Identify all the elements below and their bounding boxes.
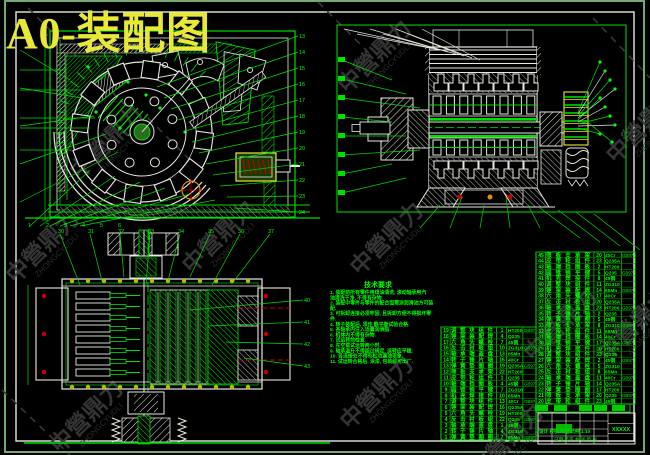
svg-text:13: 13 xyxy=(299,34,305,40)
svg-text:GB97: GB97 xyxy=(622,270,634,275)
svg-text:4. 转子装配后, 须作 静平衡试验合格.: 4. 转子装配后, 须作 静平衡试验合格. xyxy=(330,321,410,328)
svg-text:2. 装配中零件与零件的配合面需涂润滑油方可装: 2. 装配中零件与零件的配合面需涂润滑油方可装 xyxy=(330,300,433,307)
svg-text:19: 19 xyxy=(299,130,305,136)
svg-text:GB97: GB97 xyxy=(524,435,536,440)
svg-text:GB97: GB97 xyxy=(622,323,634,328)
svg-text:配.: 配. xyxy=(330,305,337,312)
svg-text:1: 1 xyxy=(445,435,448,441)
svg-text:32: 32 xyxy=(118,229,124,235)
svg-text:技术要求: 技术要求 xyxy=(364,280,393,289)
svg-text:1: 1 xyxy=(28,223,31,229)
svg-text:GB97: GB97 xyxy=(622,341,634,346)
svg-text:10. 各连接处不得有松动漏油现象.: 10. 各连接处不得有松动漏油现象. xyxy=(330,353,404,360)
svg-text:7. 试运转前检查.: 7. 试运转前检查. xyxy=(330,337,367,344)
svg-text:17: 17 xyxy=(299,98,305,104)
svg-text:20: 20 xyxy=(299,146,305,152)
svg-text:油清洗干净, 不得有杂物.: 油清洗干净, 不得有杂物. xyxy=(330,294,384,301)
svg-text:件.: 件. xyxy=(330,316,337,323)
svg-text:7: 7 xyxy=(501,435,504,441)
svg-text:3: 3 xyxy=(64,223,67,229)
svg-text:65Mn: 65Mn xyxy=(508,435,520,441)
svg-text:24: 24 xyxy=(299,210,305,216)
svg-text:35: 35 xyxy=(208,229,214,235)
svg-text:40: 40 xyxy=(304,298,310,304)
svg-text:XXXXX: XXXXX xyxy=(612,427,631,433)
svg-text:GB97: GB97 xyxy=(524,417,536,422)
svg-text:GB97: GB97 xyxy=(622,376,634,381)
svg-text:30: 30 xyxy=(58,229,64,235)
svg-text:16: 16 xyxy=(299,82,305,88)
svg-text:23: 23 xyxy=(299,194,305,200)
svg-text:GB97: GB97 xyxy=(524,328,536,333)
svg-text:31: 31 xyxy=(88,229,94,235)
svg-text:GB97: GB97 xyxy=(622,393,634,398)
svg-text:GB97: GB97 xyxy=(524,364,536,369)
svg-text:GB97: GB97 xyxy=(524,399,536,404)
svg-text:GB97: GB97 xyxy=(622,358,634,363)
svg-text:5: 5 xyxy=(100,223,103,229)
svg-text:日期 签字 共 张 第 张: 日期 签字 共 张 第 张 xyxy=(554,436,598,443)
svg-text:GB97: GB97 xyxy=(622,305,634,310)
svg-text:3. 可拆卸连接必须牢固, 且拆卸方便不得损坏零: 3. 可拆卸连接必须牢固, 且拆卸方便不得损坏零 xyxy=(330,310,431,317)
svg-text:2: 2 xyxy=(46,223,49,229)
svg-text:43: 43 xyxy=(304,364,310,370)
svg-text:GB97: GB97 xyxy=(524,346,536,351)
svg-text:41: 41 xyxy=(304,320,310,326)
svg-text:GB97: GB97 xyxy=(524,381,536,386)
svg-text:42: 42 xyxy=(304,342,310,348)
svg-text:18: 18 xyxy=(299,114,305,120)
svg-text:33: 33 xyxy=(148,229,154,235)
svg-text:36: 36 xyxy=(238,229,244,235)
svg-text:37: 37 xyxy=(268,229,274,235)
svg-text:14: 14 xyxy=(299,50,305,56)
svg-text:GB97: GB97 xyxy=(622,288,634,293)
svg-text:5. 各轴承内注入适量润滑脂.: 5. 各轴承内注入适量润滑脂. xyxy=(330,326,391,333)
svg-text:11. 试运转合格后, 涂漆, 包装即可出厂.: 11. 试运转合格后, 涂漆, 包装即可出厂. xyxy=(330,358,414,365)
svg-text:1. 装配前所有零件用煤油清洗, 滚动轴承用汽: 1. 装配前所有零件用煤油清洗, 滚动轴承用汽 xyxy=(330,289,426,296)
svg-text:6. 机体内不得有杂物.: 6. 机体内不得有杂物. xyxy=(330,331,377,338)
svg-text:15: 15 xyxy=(299,66,305,72)
svg-text:21: 21 xyxy=(299,162,305,168)
svg-text:GB97: GB97 xyxy=(622,253,634,258)
svg-text:8. 先空载试运转两小时.: 8. 先空载试运转两小时. xyxy=(330,342,381,349)
svg-text:34: 34 xyxy=(178,229,184,235)
svg-text:4: 4 xyxy=(82,223,85,229)
svg-text:9. 轴承温升不得超过规定, 运转应平稳.: 9. 轴承温升不得超过规定, 运转应平稳. xyxy=(330,347,414,354)
svg-text:A0-装配图: A0-装配图 xyxy=(6,9,210,58)
svg-text:22: 22 xyxy=(299,178,305,184)
